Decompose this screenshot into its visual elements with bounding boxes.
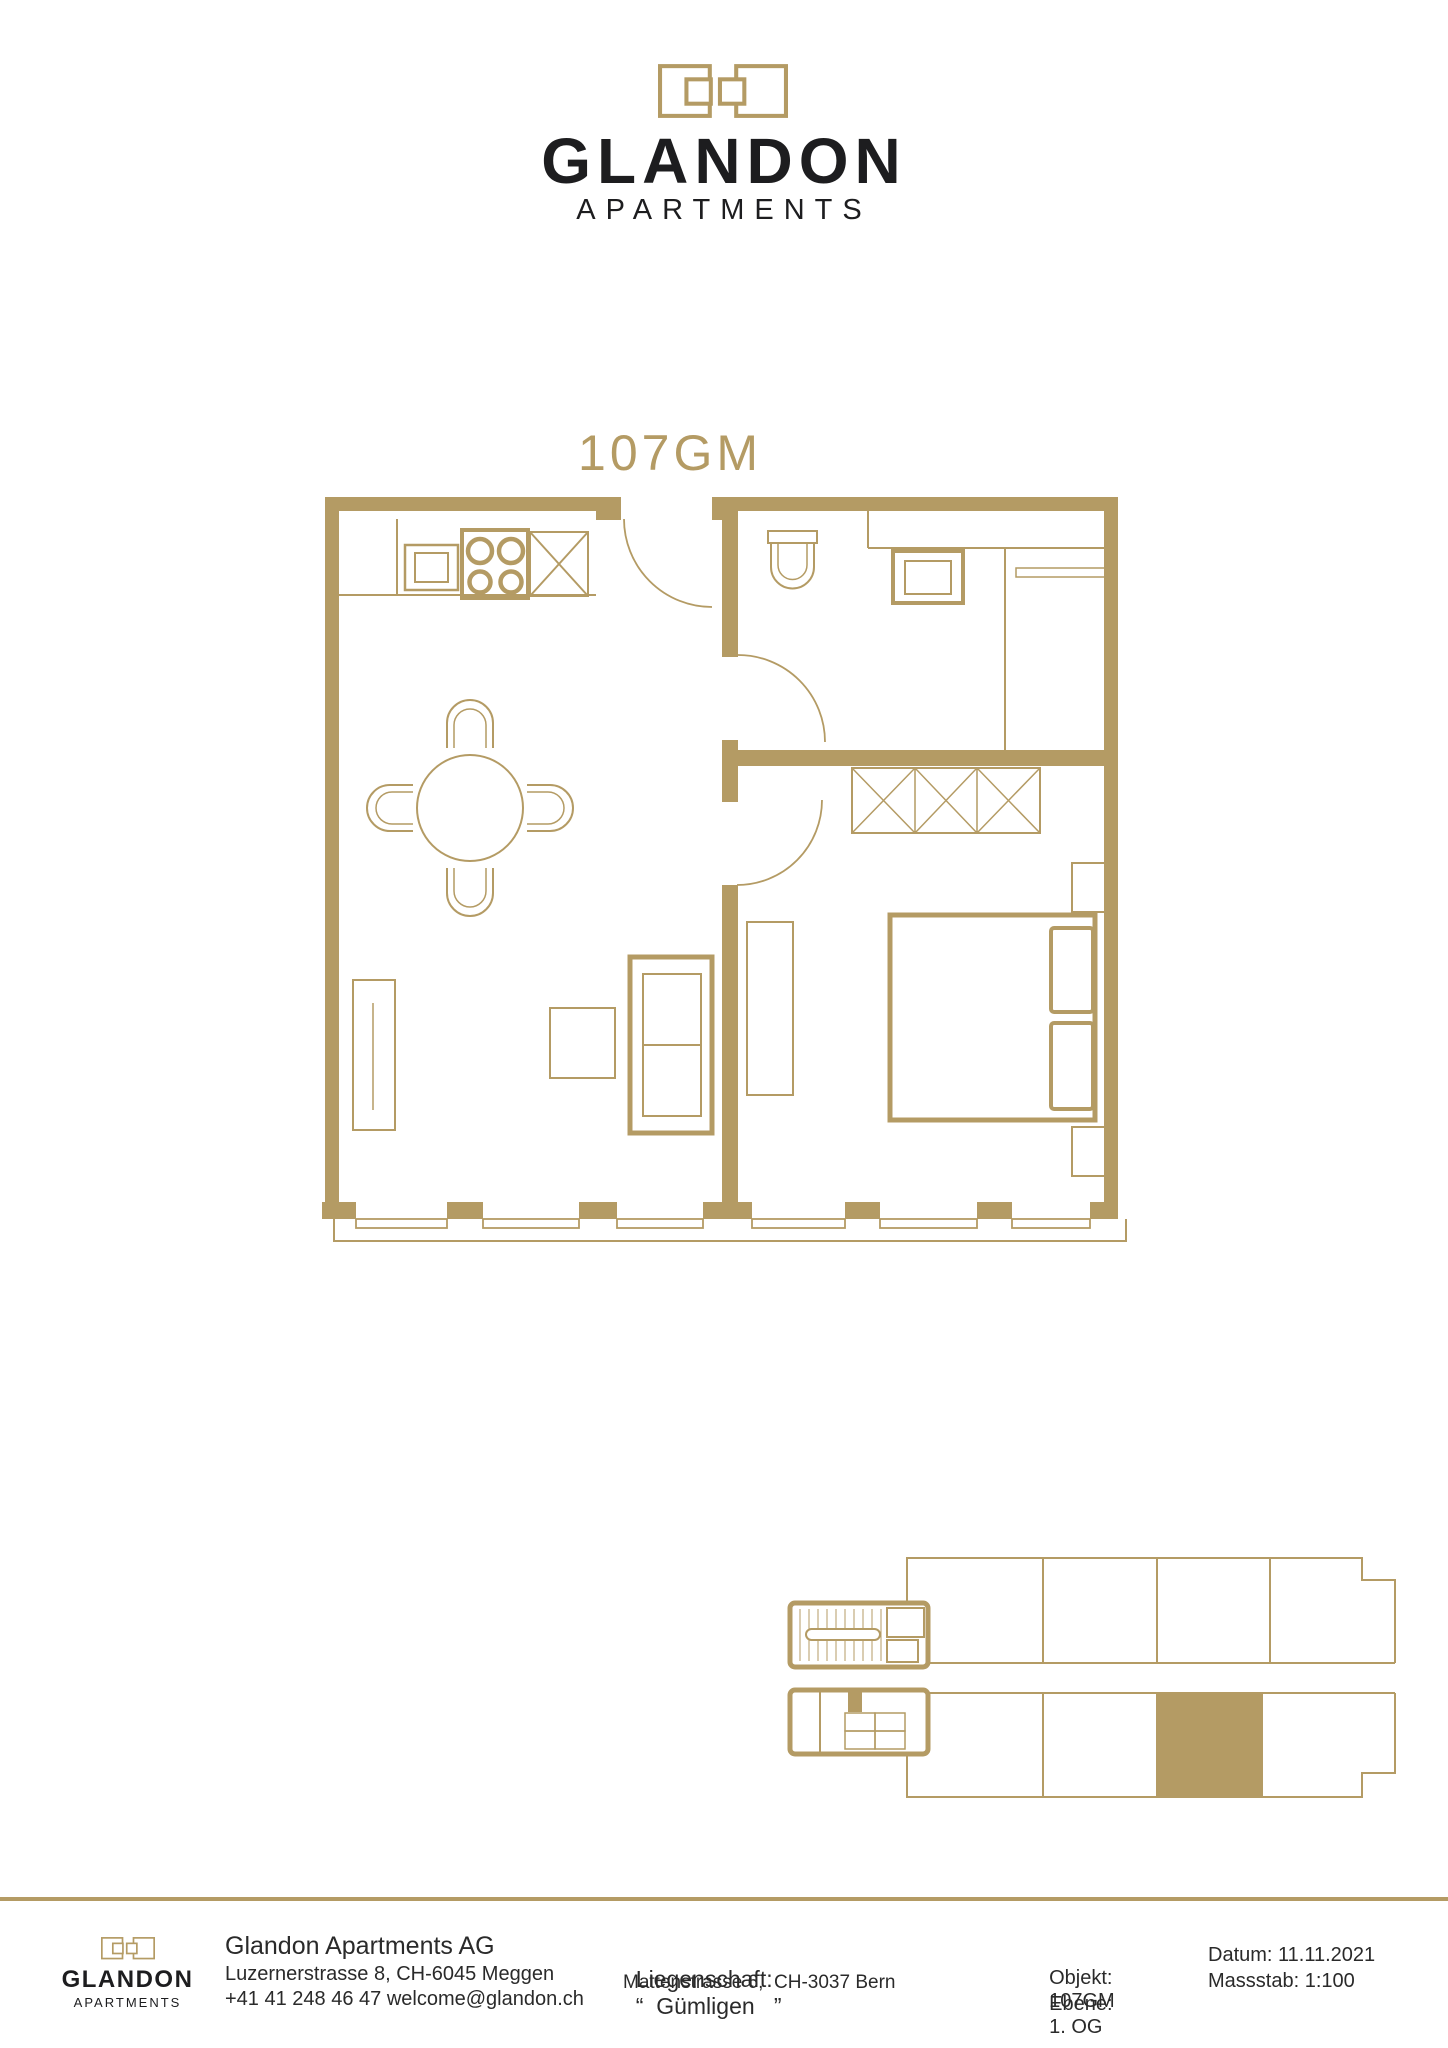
window <box>1012 1219 1090 1228</box>
footer-divider-rule <box>0 1897 1448 1901</box>
stair-core <box>790 1603 928 1754</box>
ebene-label: Ebene: <box>1049 1993 1118 2015</box>
niche-outline <box>868 511 1104 548</box>
toilet-tank-icon <box>768 531 817 543</box>
unit-dividers-top <box>1043 1558 1270 1663</box>
ebene-line: Ebene: 1. OG <box>1038 1970 1118 2039</box>
glandon-logo-icon <box>658 62 788 119</box>
chair-icon-inner <box>527 792 564 824</box>
window <box>483 1219 579 1228</box>
building-overview-plan <box>783 1545 1403 1811</box>
bedroom-door-arc <box>737 800 822 885</box>
apartment-number-title: 107GM <box>400 424 940 482</box>
utility-room <box>845 1713 875 1731</box>
windows-and-balcony <box>334 1219 1126 1241</box>
shelf-icon <box>1016 568 1106 577</box>
nightstand-icon <box>1072 863 1105 912</box>
building-outline <box>907 1558 1395 1797</box>
coffee-table-icon <box>550 1008 615 1078</box>
company-name: Glandon Apartments AG <box>225 1932 495 1961</box>
floor-plan-page: { "page": { "background": "#ffffff", "ac… <box>0 0 1448 2048</box>
logo-small-square-right <box>720 79 744 103</box>
bathroom <box>768 511 1106 750</box>
utility-room <box>875 1731 905 1749</box>
oven-icon <box>405 545 458 590</box>
utility-wall-stub <box>848 1690 862 1712</box>
dining-table-icon <box>417 755 523 861</box>
footer-logo-icon <box>101 1934 155 1962</box>
chair-icon-inner <box>454 868 486 907</box>
elevator-icon <box>887 1608 924 1637</box>
property-address: Mattenstrasse 6, CH-3037 Bern <box>623 1972 895 1994</box>
walls <box>322 497 1118 1219</box>
sideboard-icon <box>353 980 395 1130</box>
window <box>752 1219 845 1228</box>
apartment-floor-plan <box>322 492 1130 1254</box>
footer-brand-subtitle: APARTMENTS <box>40 1995 215 2010</box>
window <box>880 1219 977 1228</box>
dresser-icon <box>747 922 793 1095</box>
window <box>617 1219 703 1228</box>
pillow-icon <box>1051 1023 1093 1109</box>
oven-door-icon <box>415 553 448 582</box>
window <box>356 1219 447 1228</box>
pillow-icon <box>1051 928 1093 1012</box>
massstab-label: Massstab: <box>1208 1970 1299 1992</box>
wardrobe-cross-lines <box>852 768 1040 833</box>
footer-brand-name: GLANDON <box>40 1966 215 1994</box>
bathroom-door-arc <box>738 655 825 742</box>
washbasin-icon <box>893 551 963 603</box>
logo-small-square-left <box>113 1943 123 1953</box>
kitchen <box>339 519 596 598</box>
highlighted-unit-107gm <box>1157 1693 1262 1797</box>
stair-handrail <box>806 1629 880 1640</box>
living-room <box>353 957 712 1133</box>
sink-unit-cross <box>530 532 588 596</box>
logo-small-square-left <box>686 79 710 103</box>
chair-icon-inner <box>454 709 486 748</box>
ebene-value: 1. OG <box>1049 2016 1102 2038</box>
massstab-value: 1:100 <box>1305 1970 1355 1992</box>
elevator-icon-small <box>887 1640 918 1662</box>
chair-icon-inner <box>376 792 413 824</box>
company-address: Luzernerstrasse 8, CH-6045 Meggen <box>225 1963 554 1986</box>
massstab-line: Massstab: 1:100 <box>1208 1970 1355 1993</box>
burner-icon <box>468 539 492 563</box>
company-contact: +41 41 248 46 47 welcome@glandon.ch <box>225 1988 584 2011</box>
toilet-bowl-inner <box>778 543 807 580</box>
burner-icon <box>501 572 522 593</box>
washbasin-inner <box>905 561 951 594</box>
burner-icon <box>470 572 491 593</box>
datum-line: Datum: 11.11.2021 <box>1208 1944 1375 1967</box>
corridor <box>928 1663 1395 1693</box>
property-name: “ Gümligen ” <box>636 1993 782 2019</box>
utility-room <box>845 1731 875 1749</box>
datum-value: 11.11.2021 <box>1278 1944 1375 1966</box>
bed-icon <box>890 915 1095 1120</box>
datum-label: Datum: <box>1208 1944 1272 1966</box>
brand-subtitle: APARTMENTS <box>0 194 1448 227</box>
bedroom <box>747 768 1105 1176</box>
burner-icon <box>499 539 523 563</box>
utility-room <box>875 1713 905 1731</box>
logo-small-square-right <box>127 1943 137 1953</box>
balcony-outline <box>334 1219 1126 1241</box>
brand-name: GLANDON <box>0 124 1448 198</box>
dining-area <box>367 700 573 916</box>
nightstand-icon <box>1072 1127 1105 1176</box>
entry-door-arc <box>624 519 712 607</box>
